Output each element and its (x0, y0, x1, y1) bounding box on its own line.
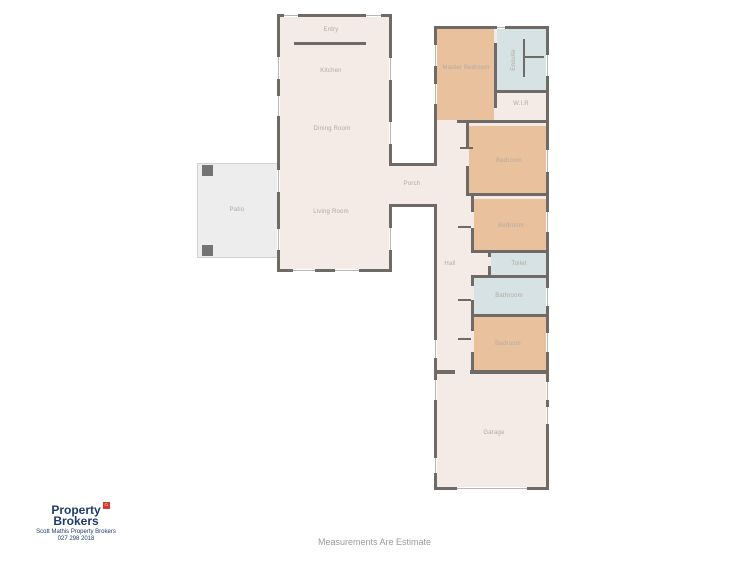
window (434, 45, 437, 66)
wall (466, 193, 546, 196)
disclaimer-text: Measurements Are Estimate (0, 537, 749, 547)
window (293, 269, 315, 272)
window (546, 288, 549, 306)
wall (488, 253, 491, 257)
wall (523, 39, 525, 77)
wall (434, 370, 455, 374)
window (277, 57, 280, 79)
wall (457, 120, 549, 123)
room-ensuite (497, 29, 546, 90)
room-label-garage: Garage (483, 430, 504, 436)
wall (523, 56, 544, 58)
porch-opening (389, 166, 392, 204)
room-label-dining: Dining Room (314, 126, 351, 132)
wall (471, 317, 474, 331)
wall (471, 275, 546, 278)
window (434, 340, 437, 358)
window (497, 26, 505, 29)
room-label-kitchen: Kitchen (320, 68, 341, 74)
window (366, 14, 381, 17)
room-label-porch: Porch (404, 181, 421, 187)
room-label-toilet: Toilet (511, 261, 526, 267)
room-master-bedroom (437, 29, 494, 120)
room-label-living: Living Room (313, 209, 349, 215)
wall (471, 300, 474, 314)
wall (471, 278, 474, 286)
wall (471, 352, 474, 370)
logo-name-line1: Property (51, 503, 100, 517)
door (458, 299, 471, 301)
wall (488, 266, 491, 275)
room-label-bedroom2: Bedroom (496, 158, 522, 164)
window (277, 96, 280, 116)
wall (471, 250, 546, 253)
room-label-hall: Hall (444, 261, 455, 267)
window (389, 58, 392, 80)
window (277, 170, 280, 192)
wall (471, 196, 474, 212)
living-wing (277, 14, 392, 272)
window (389, 122, 392, 144)
door (458, 226, 471, 228)
door (460, 147, 473, 149)
window (434, 380, 437, 400)
window (284, 14, 298, 17)
window (277, 229, 280, 250)
wall (471, 228, 474, 250)
room-label-bathroom: Bathroom (495, 293, 523, 299)
wall (294, 42, 366, 45)
patio-post (202, 165, 213, 176)
room-label-bedroom3: Bedroom (498, 223, 524, 229)
house-icon: ⌂ (103, 502, 110, 509)
room-label-wir: W.I.R (513, 101, 529, 107)
wall (471, 314, 546, 317)
window (434, 84, 437, 104)
patio-post (202, 245, 213, 256)
room-label-ensuite: Ensuite (511, 49, 517, 70)
wall (497, 90, 546, 93)
wall (466, 166, 469, 193)
window (546, 150, 549, 172)
window (546, 55, 549, 76)
room-label-bedroom4: Bedroom (495, 341, 521, 347)
room-label-entry: Entry (323, 27, 338, 33)
window (546, 382, 549, 400)
room-label-patio: Patio (230, 207, 245, 213)
wall (392, 204, 434, 207)
window (434, 458, 437, 473)
floorplan-canvas: Entry Kitchen Dining Room Living Room Pa… (0, 0, 749, 562)
window (335, 269, 359, 272)
agent-name: Scott Mathis Property Brokers (24, 529, 128, 536)
window (546, 212, 549, 232)
wall (392, 163, 434, 166)
wall (470, 370, 549, 374)
wall (494, 43, 497, 108)
door (458, 338, 471, 340)
window (389, 228, 392, 250)
wall (466, 123, 469, 148)
room-label-master-bedroom: Master Bedroom (442, 65, 489, 71)
garage-door-opening (457, 487, 527, 490)
window (546, 333, 549, 352)
window (546, 407, 549, 424)
